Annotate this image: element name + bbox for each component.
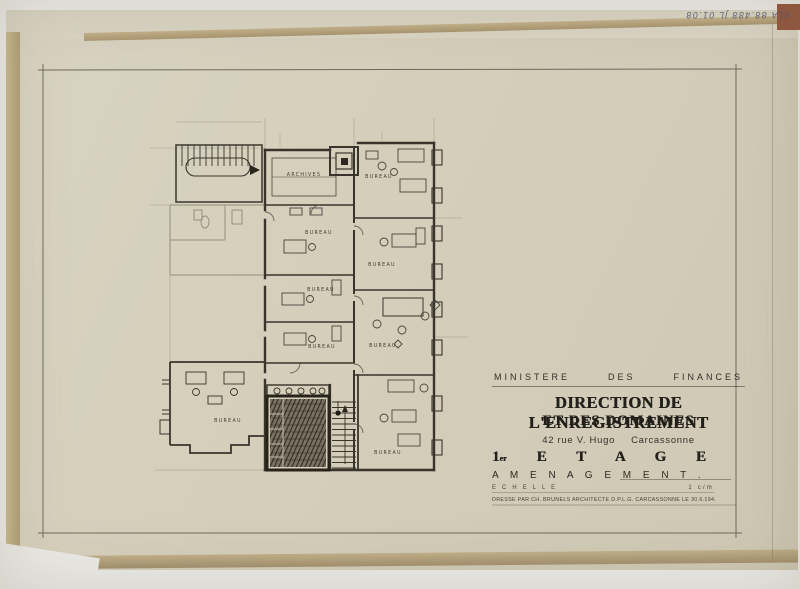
archives-room [272,147,358,196]
main-staircase-block [267,385,329,470]
ministry-word: MINISTERE [494,372,570,382]
room-label: BUREAU [308,344,336,350]
floor-ordinal: er [500,454,507,463]
ministry-line: MINISTERE DES FINANCES [492,372,745,387]
room-label: BUREAU [368,262,396,268]
ministry-word: DES [608,372,636,382]
address-line: 42 rue V. Hugo Carcassonne [492,435,745,446]
side-stair-flight [332,401,356,468]
room-label: BUREAU [307,287,335,293]
title-block: MINISTERE DES FINANCES DIRECTION DE L'EN… [492,372,745,516]
floor-word: E T A G E [537,449,719,466]
door-swings [265,205,363,433]
attribution-line: DRESSE PAR CH. BRUNELS ARCHITECTE D.P.L.… [492,496,737,505]
floor-designation: 1er E T A G E [492,449,745,466]
room-label: BUREAU [214,418,242,424]
drawing-title-line2: ET DES DOMAINES [492,413,745,430]
drawing-subtitle: A M E N A G E M E N T . [492,470,745,481]
scale-value: 1 c/m [688,484,714,491]
room-label: BUREAU [374,450,402,456]
scale-line: E C H E L L E 1 c/m [492,484,714,493]
bottom-left-room [160,362,265,453]
ministry-word: FINANCES [673,372,743,382]
scanned-drawing-photo: VLA 88.488 JL 01.08 [0,0,800,589]
scale-label: E C H E L L E [492,484,557,491]
floor-number: 1 [492,449,500,466]
room-label: BUREAU [369,343,397,349]
city-name: Carcassonne [631,435,695,446]
room-label: BUREAU [305,230,333,236]
room-label: BUREAU [365,174,393,180]
staircase-upper-left [176,145,262,202]
room-label: ARCHIVES [287,172,322,178]
street-address: 42 rue V. Hugo [542,435,615,446]
left-wing-rooms [170,205,265,275]
